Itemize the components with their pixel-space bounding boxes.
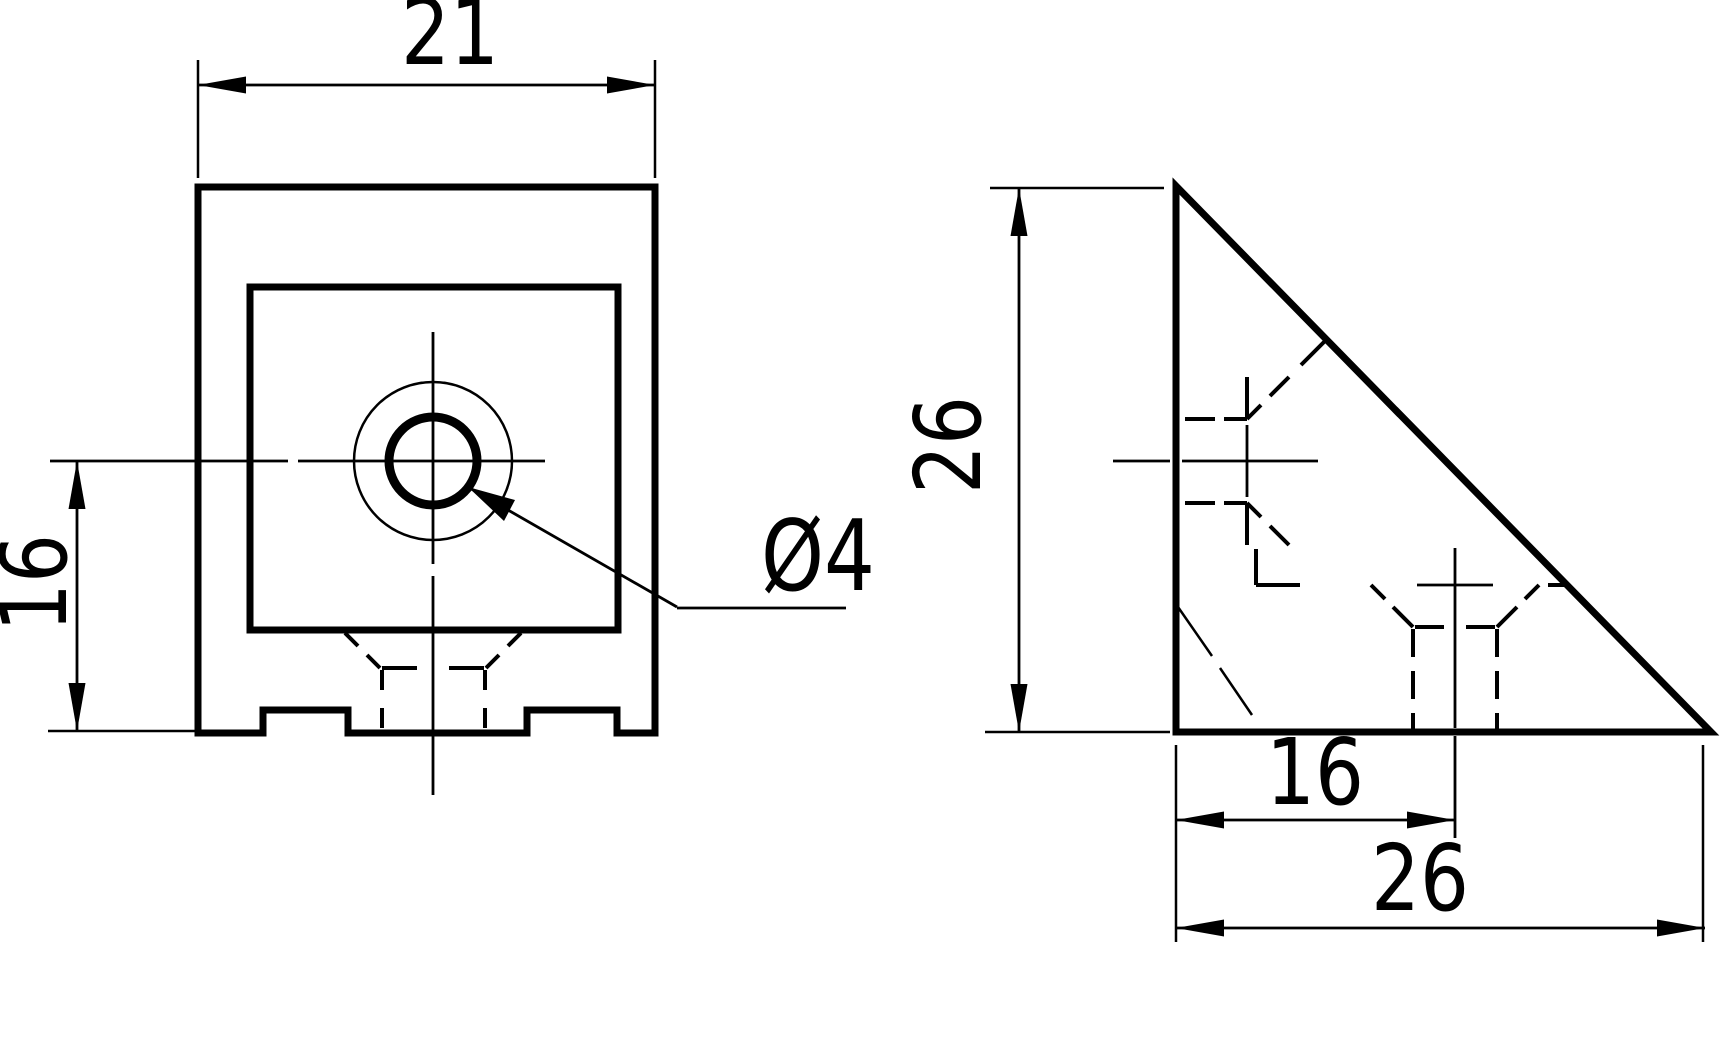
dimensions: 21 16 Ø4 26 16 26 [0,0,1705,942]
side-hole-offset-dim-label: 16 [1266,719,1364,826]
dimension-lines [77,85,1705,928]
hole-diameter-label: Ø4 [761,500,875,614]
front-height-dim-label: 16 [0,534,88,632]
side-view [1113,186,1711,838]
side-base-dim-label: 26 [1371,825,1469,932]
side-upper-hole-hidden [1185,340,1326,585]
side-height-dim-label: 26 [895,396,1002,494]
technical-drawing-canvas: 21 16 Ø4 26 16 26 [0,0,1724,1039]
side-upper-hole-centerline [1113,425,1318,497]
front-width-dim-label: 21 [401,0,499,86]
drawing-page: 21 16 Ø4 26 16 26 [0,0,1724,1039]
side-fillet-line [1178,607,1252,715]
side-bottom-hole-hidden [1371,585,1566,730]
front-view [50,187,655,795]
dimension-arrowheads [69,77,1706,937]
side-bottom-hole-centerline [1417,548,1493,838]
side-triangle-outline [1176,186,1711,732]
front-centerlines [50,332,545,795]
